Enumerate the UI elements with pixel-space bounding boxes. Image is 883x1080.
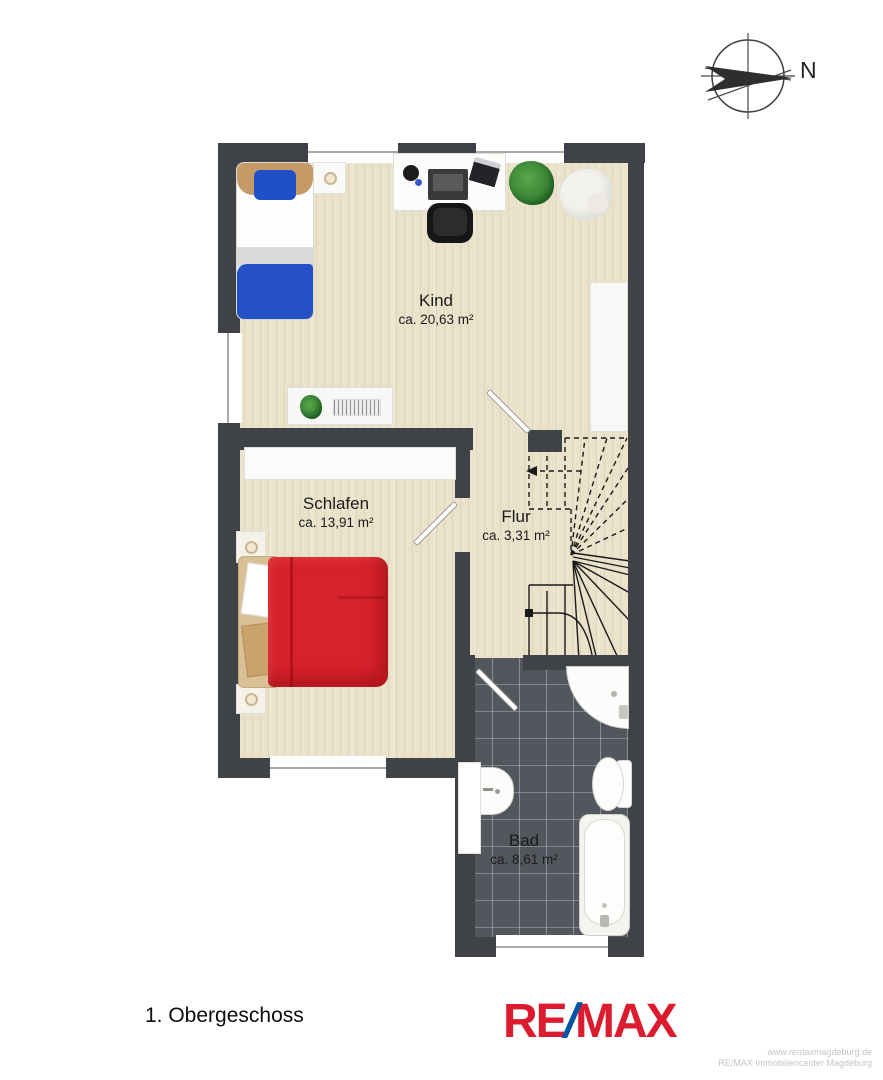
desk-lamp-base <box>415 179 422 186</box>
floor-title: 1. Obergeschoss <box>145 1004 304 1028</box>
lamp-icon <box>245 693 258 706</box>
room-name-bad: Bad <box>452 831 596 851</box>
remax-logo-max: MAX <box>575 995 676 1048</box>
shower-fixture <box>619 705 628 719</box>
room-area-flur: ca. 3,31 m² <box>468 527 564 544</box>
footer-office: RE/MAX Immobiliencenter Magdeburg <box>520 1058 872 1069</box>
window-bad <box>496 935 608 959</box>
nightstand-kind <box>313 162 346 194</box>
bathtub-drain-icon <box>602 903 607 908</box>
wall-kind-flur-stub <box>528 430 562 452</box>
double-bed-duvet <box>268 557 388 687</box>
remax-logo-re: RE <box>503 995 566 1048</box>
lamp-icon <box>245 541 258 554</box>
duvet-fold <box>338 596 386 599</box>
sink-drain-icon <box>495 789 500 794</box>
wall-schlafen-flur-upper <box>455 428 470 498</box>
footer-credits: www.remaxmagdeburg.de RE/MAX Immobilienc… <box>520 1047 872 1069</box>
compass-north-label: N <box>800 57 817 84</box>
bathtub-faucet-icon <box>600 915 609 927</box>
window-top-left <box>308 141 398 163</box>
shower-drain-icon <box>611 691 617 697</box>
laptop-screen <box>433 174 463 191</box>
sideboard <box>287 387 393 425</box>
footer-url: www.remaxmagdeburg.de <box>520 1047 872 1058</box>
duvet-fold <box>290 557 293 687</box>
nightstand-schlafen-bottom <box>236 684 266 714</box>
wall-schlafen-flur-lower <box>455 552 470 660</box>
room-label-schlafen: Schlafen ca. 13,91 m² <box>264 494 408 531</box>
room-label-flur: Flur ca. 3,31 m² <box>468 507 564 544</box>
plush-toy <box>559 168 613 220</box>
compass-icon <box>693 28 808 123</box>
plant-kind <box>509 161 554 205</box>
wardrobe-schlafen <box>244 447 456 480</box>
room-area-kind: ca. 20,63 m² <box>360 311 512 328</box>
kids-bed-blanket <box>237 264 313 320</box>
plush-toy-head <box>588 193 608 213</box>
toilet <box>592 757 632 811</box>
double-bed <box>238 556 388 688</box>
lamp-icon <box>324 172 337 185</box>
room-label-bad: Bad ca. 8,61 m² <box>452 831 596 868</box>
floorplan-page: Kind ca. 20,63 m² Schlafen ca. 13,91 m² … <box>0 0 883 1080</box>
kids-bed <box>236 162 314 320</box>
room-name-schlafen: Schlafen <box>264 494 408 514</box>
sideboard-plant <box>300 395 322 419</box>
room-name-flur: Flur <box>468 507 564 527</box>
window-left <box>214 333 242 423</box>
toilet-bowl <box>592 757 624 811</box>
office-chair <box>427 203 473 243</box>
wall-right <box>628 143 644 957</box>
office-chair-seat <box>433 208 467 236</box>
remax-logo: RE/MAX <box>503 1000 676 1044</box>
room-name-kind: Kind <box>360 291 512 311</box>
room-area-schlafen: ca. 13,91 m² <box>264 514 408 531</box>
closet-kind <box>590 282 628 432</box>
faucet-icon <box>483 788 493 791</box>
kids-bed-pillow <box>254 170 296 200</box>
room-label-kind: Kind ca. 20,63 m² <box>360 291 512 328</box>
window-schlafen <box>270 756 386 780</box>
sideboard-decor <box>333 399 381 416</box>
papers <box>468 157 501 190</box>
room-area-bad: ca. 8,61 m² <box>452 851 596 868</box>
laptop <box>428 169 468 200</box>
staircase <box>523 435 633 661</box>
